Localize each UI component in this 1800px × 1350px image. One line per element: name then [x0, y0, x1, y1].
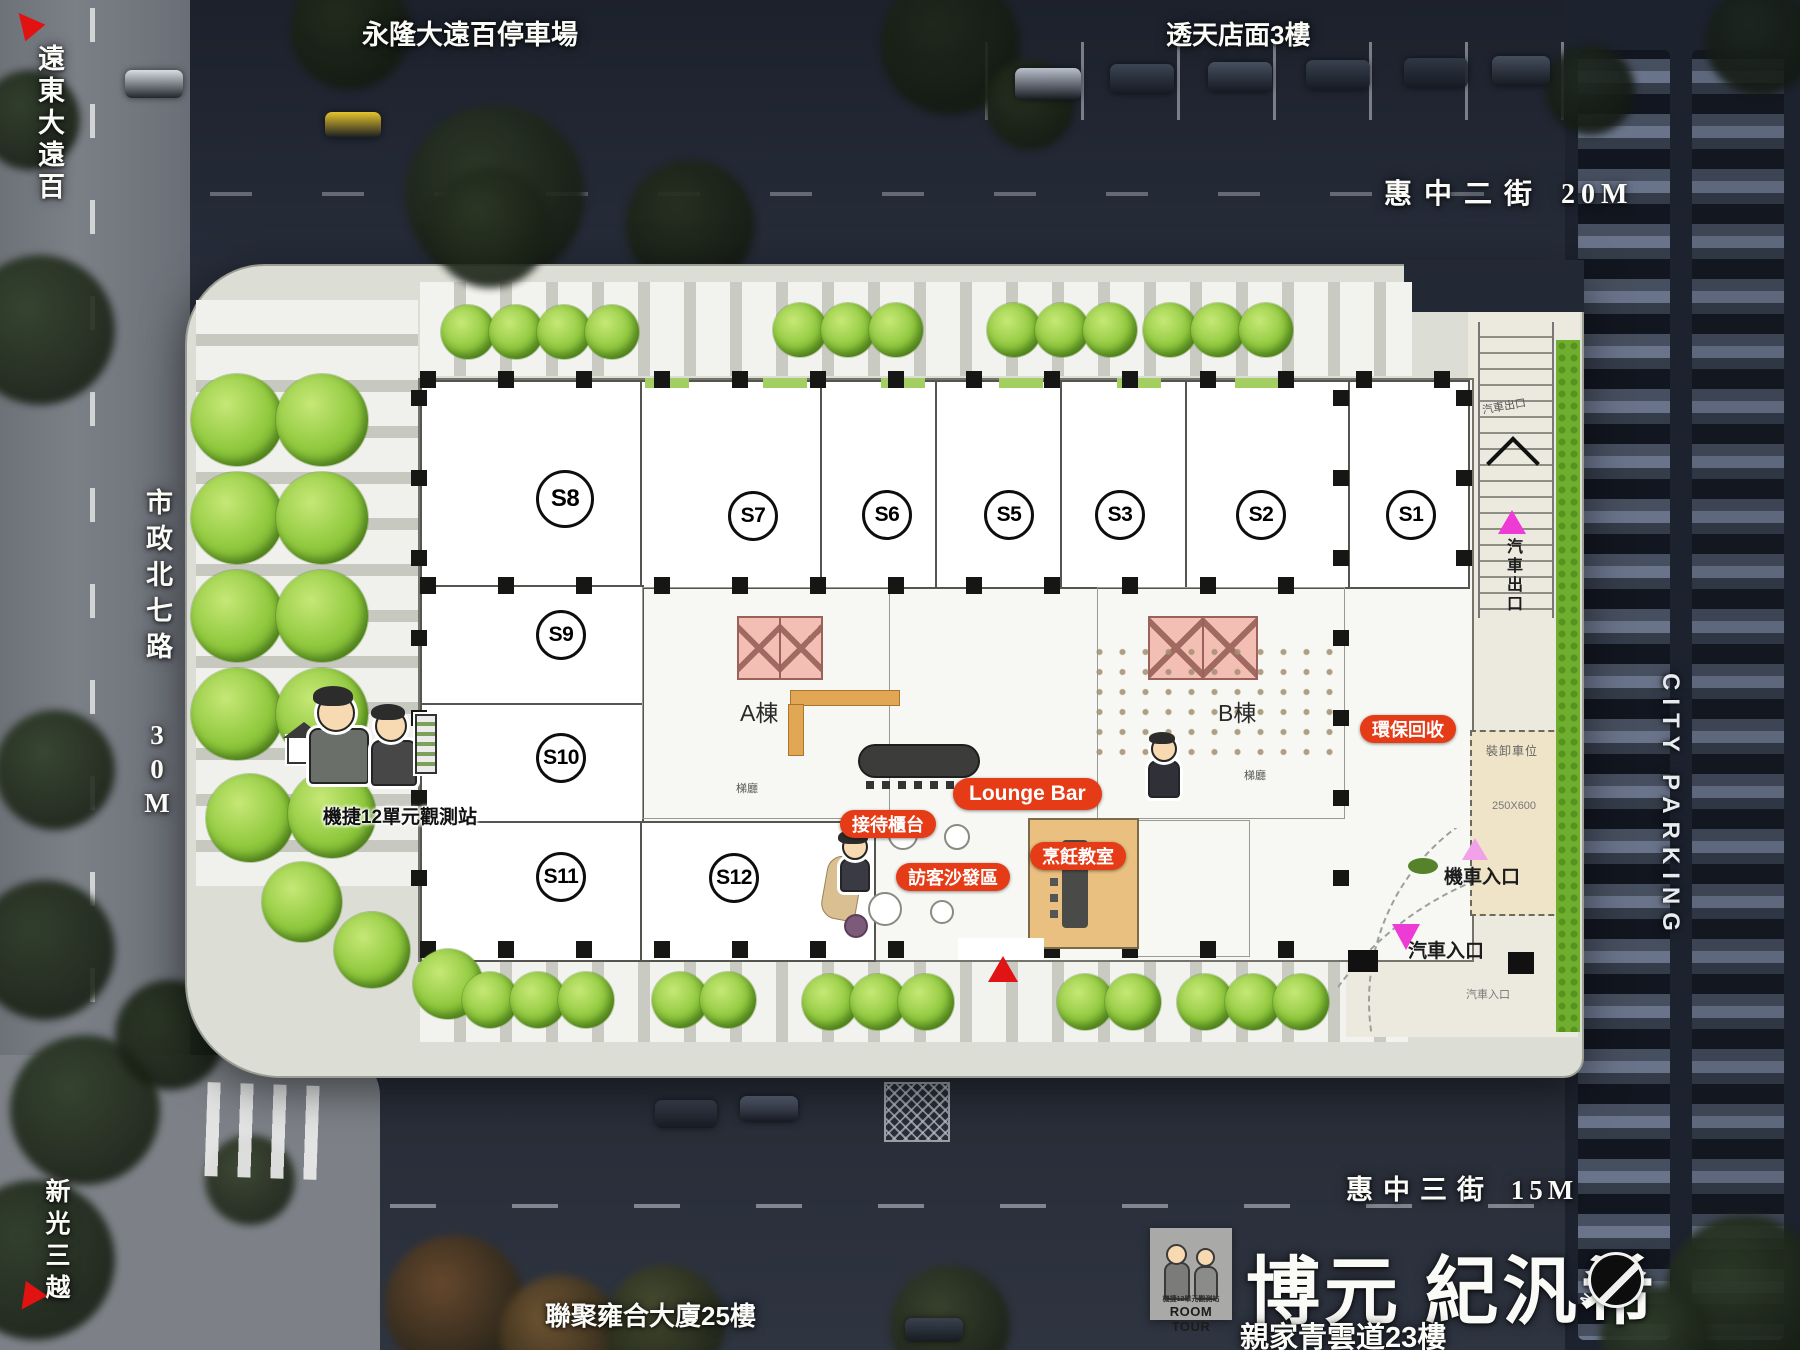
potted-plant: [846, 916, 866, 936]
photo-car: [125, 70, 183, 98]
street-north-width: 20M: [1561, 179, 1633, 210]
man-body: [309, 728, 369, 784]
fareast-dept-label: 遠東大遠百: [30, 44, 69, 204]
plan-top-right-notch: [1404, 260, 1584, 312]
photo-car: [325, 112, 381, 138]
unit-room-s9: [420, 585, 644, 707]
plan-tree: [821, 303, 875, 357]
visitor-table-3: [868, 892, 902, 926]
woman-hair: [371, 704, 405, 720]
plan-tree: [773, 303, 827, 357]
station-mascot-couple: [287, 688, 437, 800]
plan-tree: [1191, 303, 1245, 357]
plan-tree: [987, 303, 1041, 357]
wood-counter-h: [790, 690, 900, 706]
lounge-bar-counter: [860, 746, 978, 776]
hedge-east: [1556, 340, 1580, 1032]
photo-car: [1404, 58, 1468, 88]
car-exit-triangle: [1498, 510, 1526, 534]
plan-tree: [262, 862, 342, 942]
butler-mascot: [1145, 736, 1181, 796]
car-entrance-triangle: [1392, 924, 1420, 950]
pillar-row-top: [420, 371, 1468, 388]
reception-pill: 接待櫃台: [840, 810, 936, 838]
plan-tree: [191, 570, 283, 662]
unit-room-s6: [820, 380, 939, 589]
tower-a-label: A棟: [740, 694, 778, 728]
lobby-b-label: 梯廳: [1244, 767, 1266, 783]
photo-car: [1110, 64, 1174, 94]
pillar-col-left: [411, 390, 427, 946]
unit-room-s7: [640, 380, 824, 589]
logo-caption: 機捷12單元觀測站: [1150, 1294, 1232, 1304]
car-exit-label: 汽車出口: [1500, 538, 1524, 614]
unit-label-s12: S12: [709, 853, 759, 903]
plan-tree: [206, 774, 294, 862]
photo-tree: [1545, 45, 1635, 135]
photo-car: [1015, 68, 1081, 100]
plan-tree: [1083, 303, 1137, 357]
logo-title: ROOM TOUR: [1150, 1304, 1232, 1334]
loading-space-label: 裝卸車位: [1486, 742, 1538, 759]
plan-tree: [1143, 303, 1197, 357]
entrance-marker-triangle: [988, 956, 1018, 982]
unit-label-s10: S10: [536, 733, 586, 783]
unit-label-s8: S8: [536, 470, 594, 528]
photo-car: [1492, 56, 1550, 86]
plan-tree: [191, 374, 283, 466]
plan-tree: [898, 974, 954, 1030]
unit-label-s9: S9: [536, 610, 586, 660]
yonglong-parking-label: 永隆大遠百停車場: [362, 13, 578, 52]
photo-tree: [0, 710, 115, 830]
street-north-name: 惠中二街: [1384, 179, 1544, 210]
street-north-label: 惠中二街 20M: [1384, 172, 1633, 212]
plan-tree: [700, 972, 756, 1028]
plan-tree: [1239, 303, 1293, 357]
pillar-row-middle: [420, 577, 1350, 594]
street-south-label: 惠中三街 15M: [1346, 1168, 1578, 1207]
recycle-pill: 環保回收: [1360, 715, 1456, 743]
plan-tree: [869, 303, 923, 357]
pillar-row-bottom: [420, 941, 1350, 958]
photo-car: [905, 1318, 963, 1342]
photo-car: [1306, 60, 1370, 90]
photo-car: [740, 1096, 798, 1122]
plan-tree: [276, 570, 368, 662]
unit-label-s5: S5: [984, 490, 1034, 540]
unit-label-s3: S3: [1095, 490, 1145, 540]
moto-entrance-label: 機車入口: [1444, 862, 1520, 889]
plan-tree: [537, 305, 591, 359]
street-west-label: 市政北七路 30M: [138, 488, 177, 822]
car-entrance-small-label: 汽車入口: [1466, 986, 1510, 1002]
driveway-bush: [1408, 858, 1438, 874]
lobby-a-label: 梯廳: [736, 780, 758, 796]
lounge-bar-pill: Lounge Bar: [953, 778, 1102, 810]
shinkong-label: 新光三越: [38, 1178, 74, 1306]
lianju-tower-label: 聯聚雍合大廈25樓: [545, 1296, 756, 1333]
plan-tree: [1105, 974, 1161, 1030]
elevator-a2: [779, 616, 823, 680]
street-west-name: 市政北七路: [142, 488, 172, 668]
hatch-square-bottom: [884, 1082, 950, 1142]
disaster-room-outline: [1136, 820, 1250, 957]
gate-post-east: [1508, 952, 1534, 974]
unit-room-s5: [935, 380, 1064, 589]
project-subtitle: 親家青雲道23樓: [1240, 1314, 1446, 1350]
receptionist-mascot: [836, 834, 872, 892]
street-west-width: 30M: [141, 720, 172, 822]
tower-b-label: B棟: [1218, 694, 1256, 728]
unit-label-s1: S1: [1386, 490, 1436, 540]
observation-station-label: 機捷12單元觀測站: [310, 802, 490, 829]
unit-label-s11: S11: [536, 852, 586, 902]
plan-tree: [334, 912, 410, 988]
visitor-table-4: [930, 900, 954, 924]
unit-label-s6: S6: [862, 490, 912, 540]
pillar-col-s1: [1456, 390, 1472, 586]
cooking-pill: 烹飪教室: [1030, 842, 1126, 870]
lane-line-left-road: [90, 8, 95, 1048]
street-south-width: 15M: [1511, 1175, 1578, 1205]
city-parking-label: CITY PARKING: [1656, 656, 1684, 956]
unit-room-s8: [420, 380, 644, 589]
unit-room-s1: [1348, 380, 1470, 589]
elevator-a1: [737, 616, 781, 680]
photo-tree: [430, 168, 550, 288]
unit-room-s2: [1185, 380, 1352, 589]
room-tour-logo: 機捷12單元觀測站 ROOM TOUR: [1150, 1228, 1232, 1320]
townhouse-label: 透天店面3樓: [1166, 15, 1310, 52]
man-hair: [313, 686, 353, 706]
plan-tree: [276, 472, 368, 564]
photo-car: [1208, 62, 1272, 92]
unit-label-s7: S7: [728, 491, 778, 541]
plan-tree: [489, 305, 543, 359]
plan-tree: [191, 472, 283, 564]
compass-icon: N: [1588, 1252, 1644, 1308]
moto-entrance-triangle: [1462, 838, 1488, 860]
woman-body: [371, 740, 417, 786]
plan-tree: [191, 668, 283, 760]
tower-icon: [415, 714, 437, 774]
parking-cars-column-2: [1692, 50, 1784, 1340]
plan-tree: [1035, 303, 1089, 357]
loading-size-label: 250X600: [1492, 800, 1536, 812]
visitor-table-2: [944, 824, 970, 850]
site-plan-map: S8 S7 S6 S5 S3 S2 S1 S9 S10 S11 S12 A棟 B…: [0, 0, 1800, 1350]
unit-room-s3: [1060, 380, 1189, 589]
visitor-sofa-pill: 訪客沙發區: [896, 863, 1010, 891]
plan-tree: [558, 972, 614, 1028]
plan-tree: [1273, 974, 1329, 1030]
plan-tree: [441, 305, 495, 359]
lounge-seating-dots: [1088, 642, 1340, 767]
photo-car: [655, 1100, 717, 1128]
unit-label-s2: S2: [1236, 490, 1286, 540]
plan-tree: [585, 305, 639, 359]
plan-tree: [276, 374, 368, 466]
street-south-name: 惠中三街: [1346, 1175, 1494, 1205]
wood-counter-v: [788, 704, 804, 756]
crosswalk-bottom-left: [204, 1082, 319, 1180]
gate-post-west: [1348, 950, 1378, 972]
